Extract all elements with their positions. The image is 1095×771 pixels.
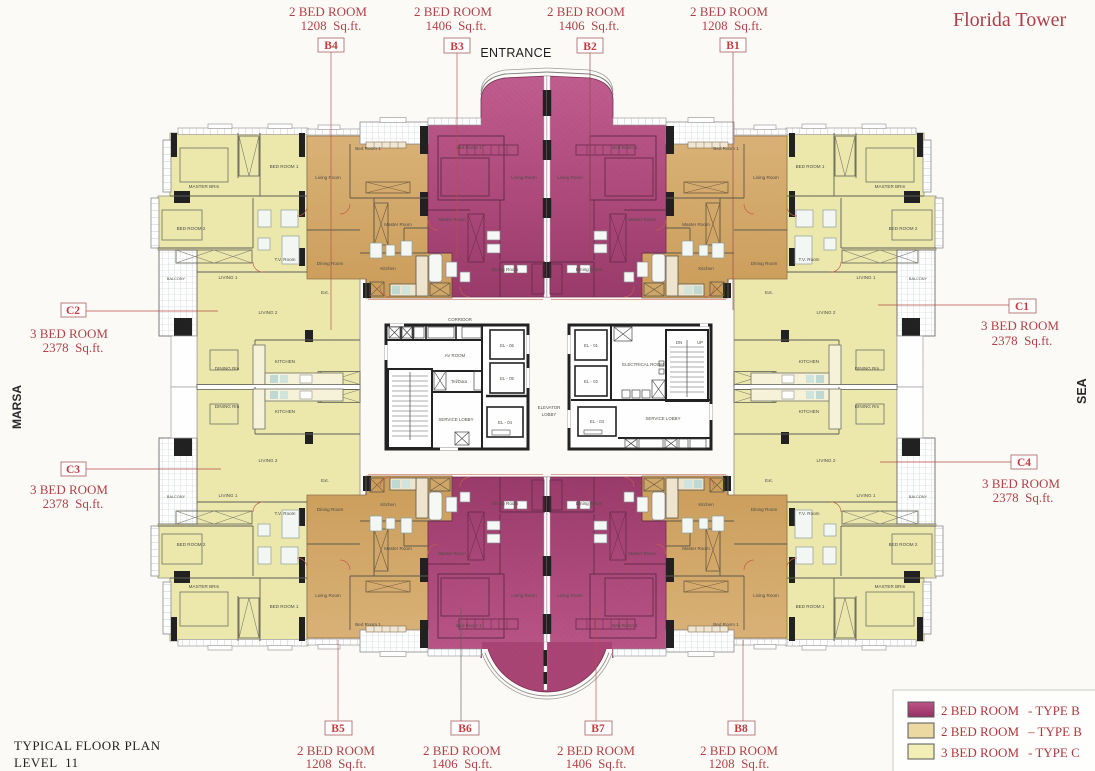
svg-text:3 BED ROOM: 3 BED ROOM [941, 745, 1019, 760]
svg-text:- TYPE B: - TYPE B [1028, 703, 1080, 718]
svg-text:2 BED ROOM: 2 BED ROOM [941, 703, 1019, 718]
svg-text:– TYPE B: – TYPE B [1027, 724, 1082, 739]
svg-text:2 BED ROOM: 2 BED ROOM [941, 724, 1019, 739]
svg-text:- TYPE C: - TYPE C [1028, 745, 1080, 760]
